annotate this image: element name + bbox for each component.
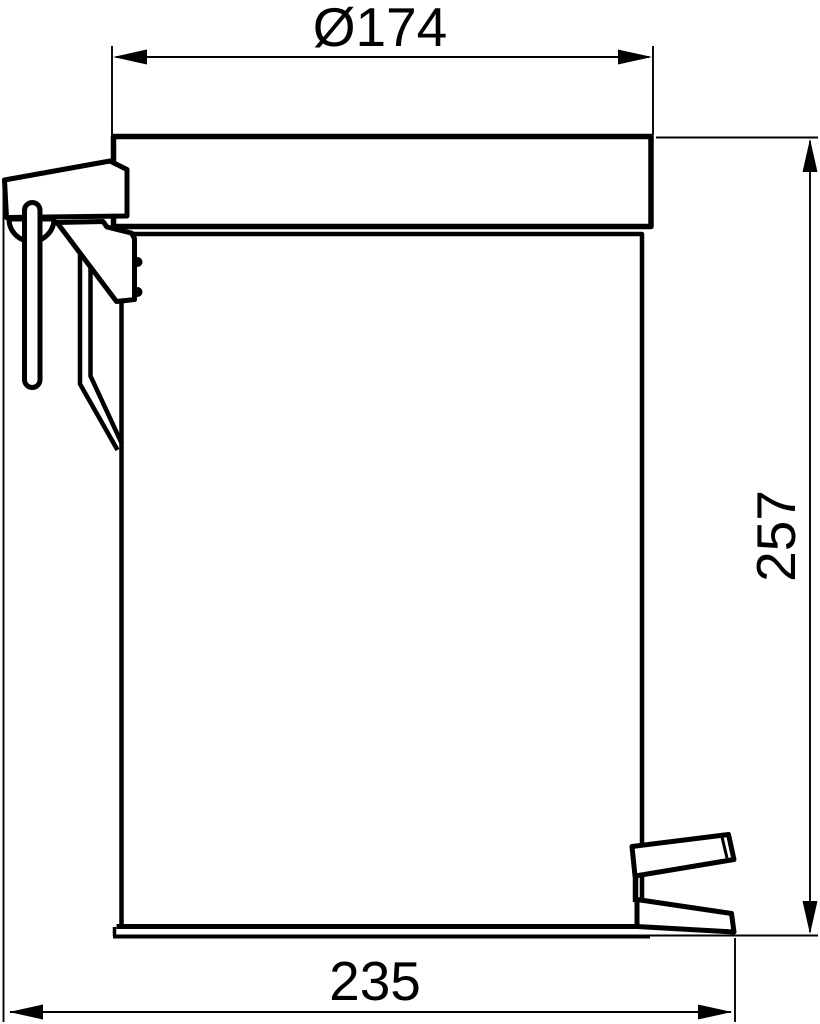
lift-rod [25,203,41,388]
dimension-diameter-top: Ø174 [112,0,653,135]
arrowhead-right-icon [618,50,652,65]
arrowhead-left-icon [113,50,147,65]
arrowhead-down-icon [803,901,818,934]
hinge-arm [57,222,135,302]
lid [114,137,652,227]
dimension-height-right: 257 [650,138,818,936]
technical-drawing-canvas: Ø174 257 235 [0,0,820,1024]
bin-outline [5,137,735,937]
arrowhead-right-icon [698,1005,732,1020]
hinge-rivet-bottom [133,287,143,297]
height-label: 257 [745,490,807,582]
diameter-label: Ø174 [313,0,448,58]
arrowhead-up-icon [803,139,818,172]
pedal-bracket [637,900,734,933]
depth-label: 235 [329,950,421,1012]
pedal-bin-drawing: Ø174 257 235 [0,0,820,1024]
arrowhead-left-icon [9,1005,43,1020]
hinge-rivet-top [133,257,143,267]
bin-body [122,234,643,927]
foot-pedal [632,835,734,877]
